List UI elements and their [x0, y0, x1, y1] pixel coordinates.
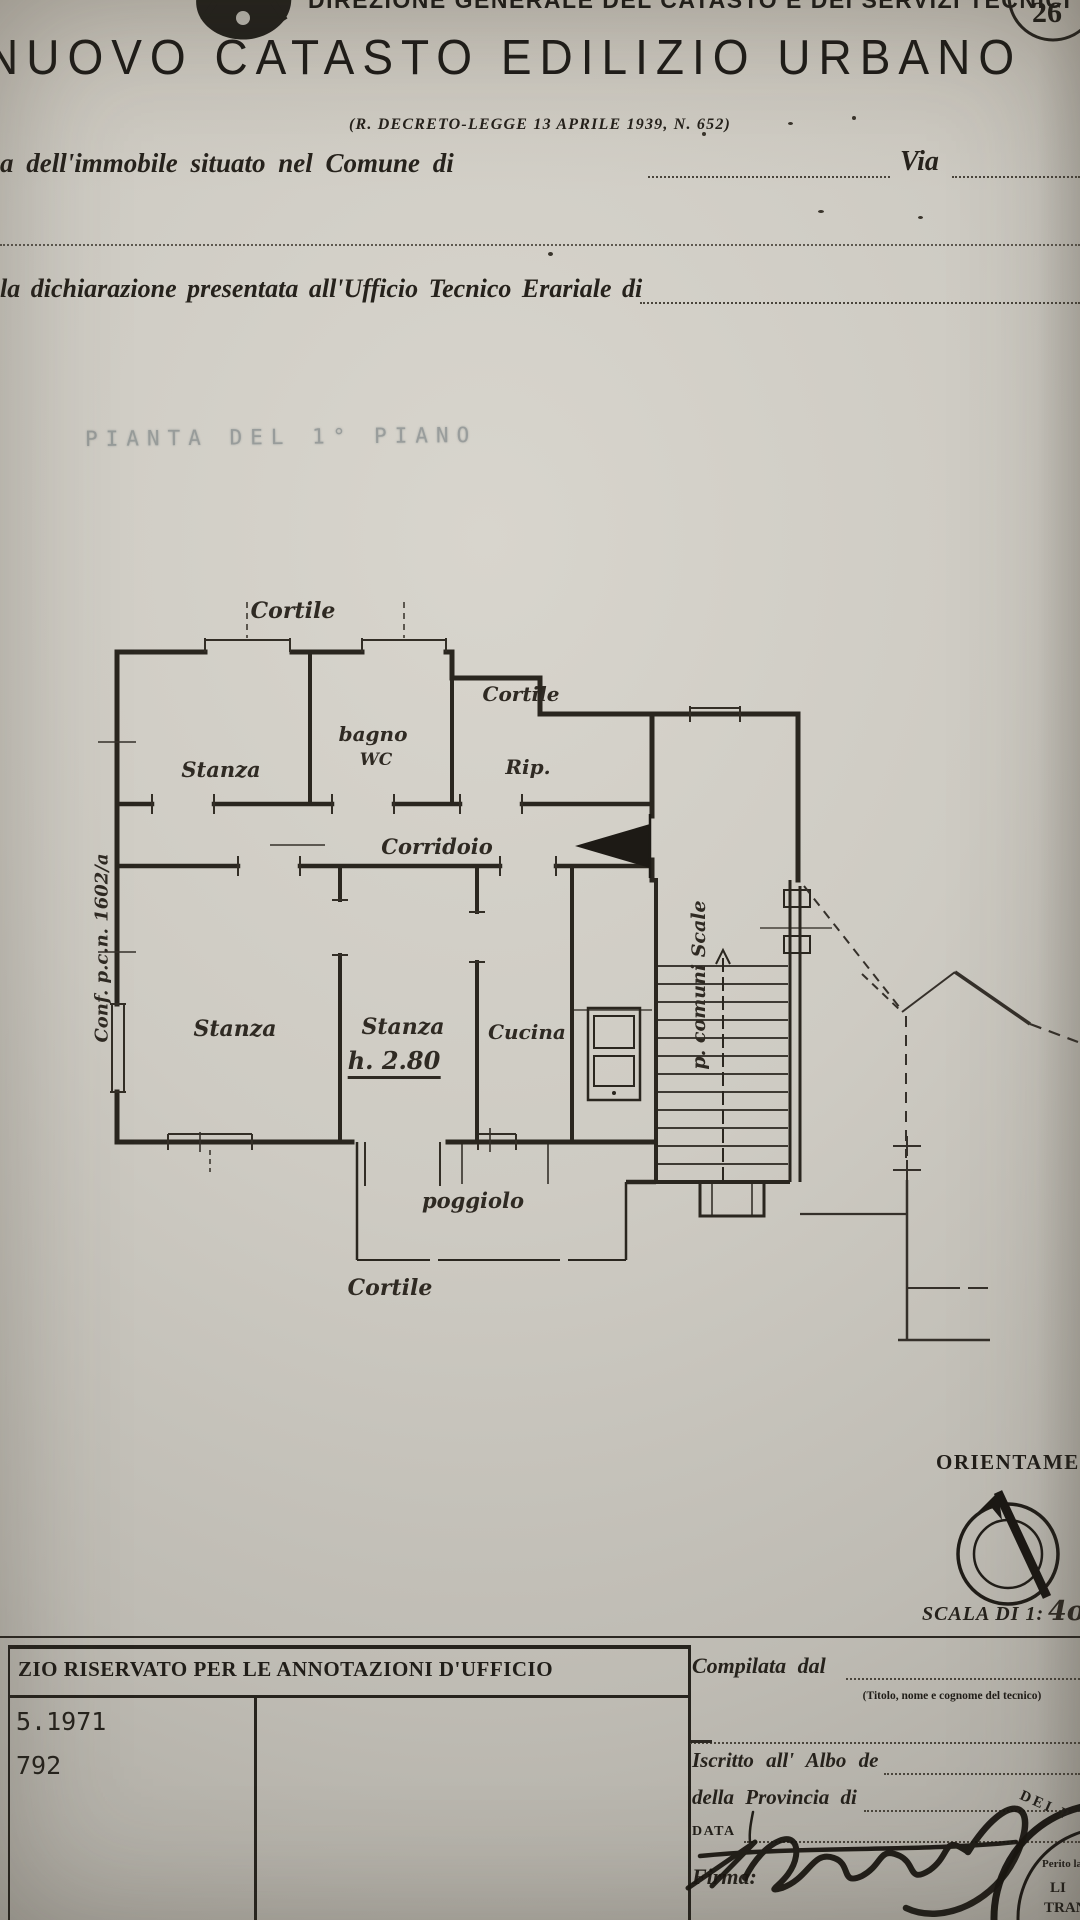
signature	[0, 0, 1080, 1920]
scanned-cadastral-document: DIREZIONE GENERALE DEL CATASTO E DEI SER…	[0, 0, 1080, 1920]
